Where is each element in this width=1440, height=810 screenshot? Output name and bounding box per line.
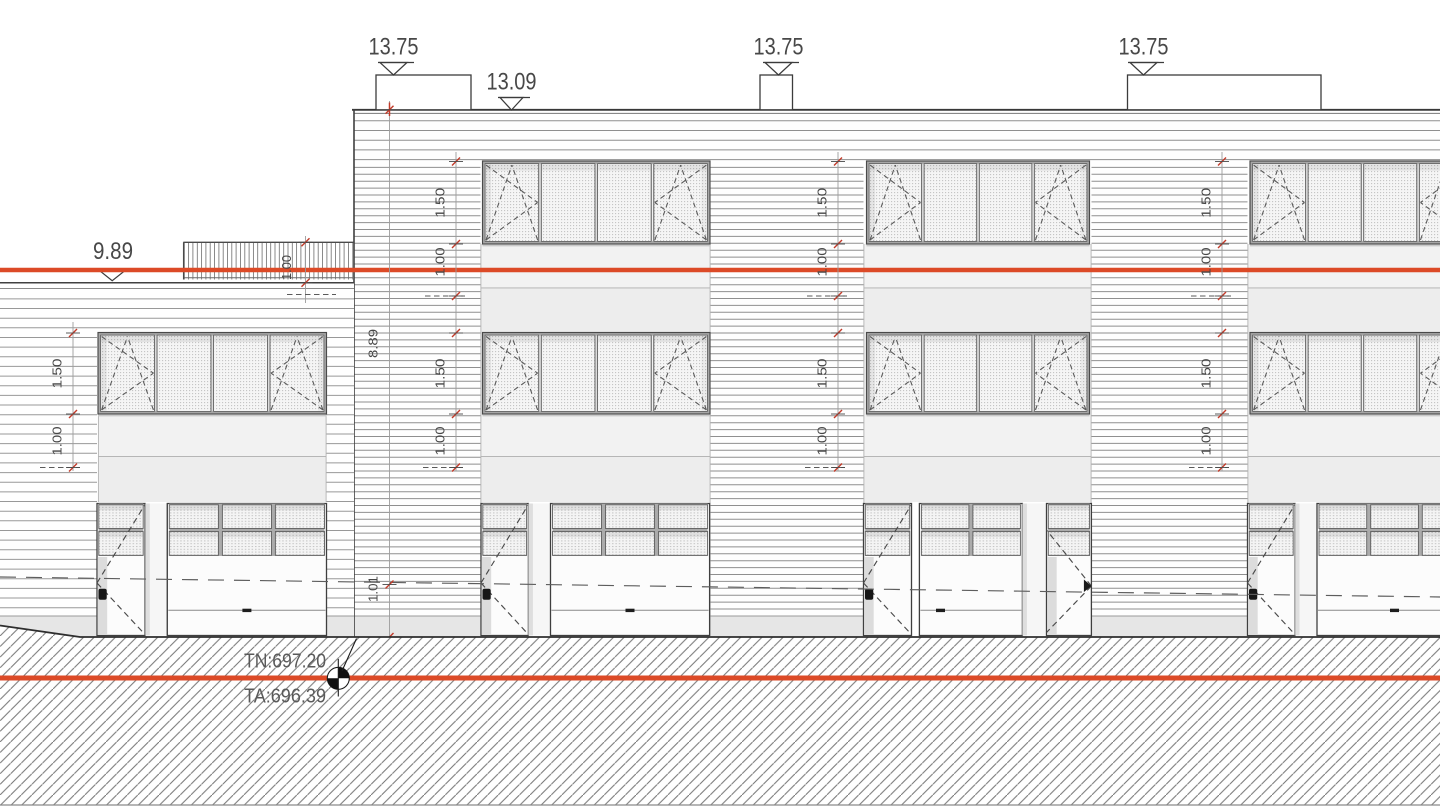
- svg-text:13.75: 13.75: [369, 34, 419, 61]
- svg-text:1.01: 1.01: [367, 576, 381, 602]
- svg-text:1.00: 1.00: [1200, 426, 1214, 455]
- svg-text:TN:697.20: TN:697.20: [244, 650, 326, 673]
- svg-text:13.75: 13.75: [754, 34, 804, 61]
- svg-text:1.00: 1.00: [51, 426, 65, 455]
- svg-text:9.89: 9.89: [93, 238, 133, 265]
- svg-text:1.00: 1.00: [1200, 247, 1214, 276]
- svg-text:1.00: 1.00: [816, 426, 830, 455]
- svg-text:1.50: 1.50: [816, 188, 830, 218]
- svg-text:8.89: 8.89: [367, 329, 381, 358]
- svg-text:1.50: 1.50: [51, 358, 65, 388]
- svg-text:13.09: 13.09: [487, 69, 537, 96]
- svg-text:1.00: 1.00: [816, 247, 830, 276]
- svg-text:1.50: 1.50: [1200, 188, 1214, 218]
- svg-text:1.50: 1.50: [816, 358, 830, 388]
- svg-text:1.50: 1.50: [1200, 358, 1214, 388]
- svg-text:1.00: 1.00: [280, 255, 294, 280]
- svg-text:1.50: 1.50: [434, 188, 448, 218]
- svg-text:TA:696.39: TA:696.39: [244, 685, 326, 708]
- svg-text:1.00: 1.00: [434, 426, 448, 455]
- svg-text:13.75: 13.75: [1119, 34, 1169, 61]
- svg-text:1.00: 1.00: [434, 247, 448, 276]
- svg-text:1.50: 1.50: [434, 358, 448, 388]
